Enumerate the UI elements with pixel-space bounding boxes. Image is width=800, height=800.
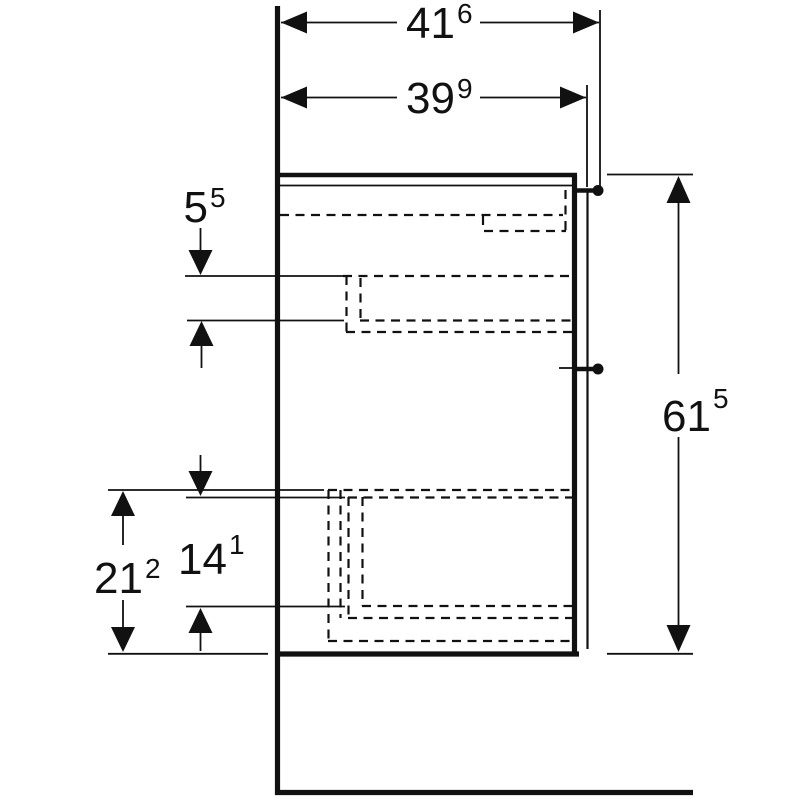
- dim-height-overall-superscript: 5: [713, 383, 729, 414]
- arrow-down-icon: [189, 471, 213, 496]
- arrow-left-icon: [281, 87, 307, 109]
- arrow-right-icon: [573, 12, 599, 34]
- dim-depth-top-value: 5: [184, 183, 208, 232]
- technical-drawing-canvas: 41 6 39 9 5 5 61 5: [0, 0, 800, 800]
- wall-and-floor: [275, 6, 693, 795]
- dim-width-inner-superscript: 9: [457, 73, 473, 104]
- arrow-up-icon: [667, 176, 691, 203]
- bottom-handle-knob: [593, 364, 604, 375]
- dim-height-drawer-inner-value: 14: [178, 535, 227, 584]
- top-handle-knob: [593, 185, 604, 196]
- dimension-height-overall: 61 5: [607, 175, 729, 654]
- dim-height-drawer-inner-superscript: 1: [229, 529, 245, 560]
- hidden-lines: [280, 190, 572, 641]
- cabinet-outline: [277, 175, 604, 656]
- dim-depth-top-superscript: 5: [210, 182, 226, 213]
- dim-width-outer-value: 41: [406, 0, 455, 48]
- dim-height-drawer-front-value: 21: [94, 554, 143, 603]
- dim-height-drawer-front-superscript: 2: [145, 553, 161, 584]
- dimension-depth-top: 5 5: [184, 182, 347, 368]
- arrow-down-icon: [189, 250, 213, 275]
- arrow-left-icon: [281, 12, 307, 34]
- dim-width-inner-value: 39: [406, 74, 455, 123]
- dim-height-overall-value: 61: [662, 392, 711, 441]
- arrow-up-icon: [190, 321, 214, 346]
- arrow-down-icon: [667, 625, 691, 652]
- dimension-width-inner: 39 9: [281, 73, 587, 187]
- arrow-up-icon: [189, 608, 213, 633]
- arrow-down-icon: [111, 627, 135, 652]
- dimension-height-drawer-inner: 14 1: [178, 455, 345, 651]
- arrow-right-icon: [560, 87, 586, 109]
- vanity-side-view-drawing: 41 6 39 9 5 5 61 5: [0, 0, 800, 800]
- arrow-up-icon: [111, 491, 135, 516]
- dim-width-outer-superscript: 6: [457, 0, 473, 29]
